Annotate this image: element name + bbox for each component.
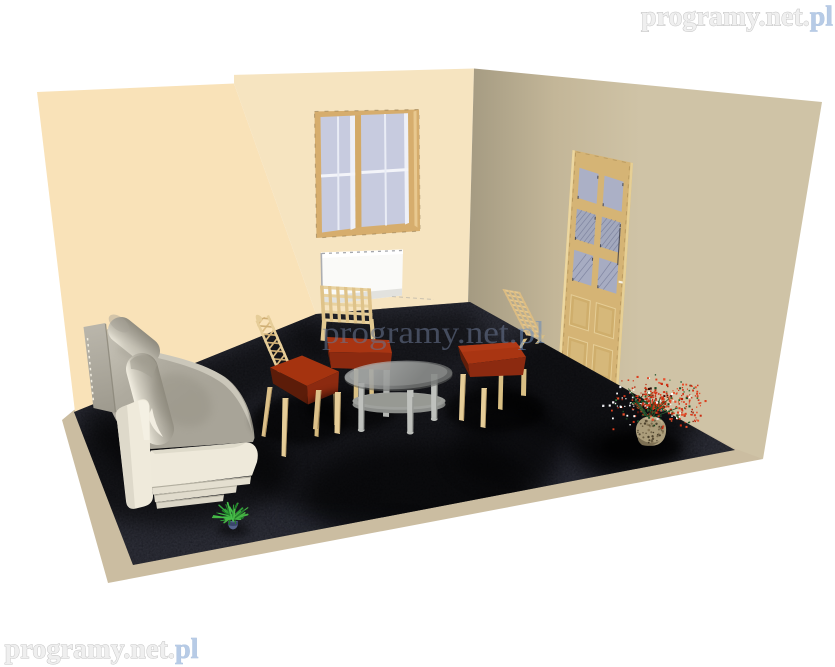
svg-text:programy.net.pl: programy.net.pl — [5, 633, 199, 665]
svg-text:programy.net.pl: programy.net.pl — [322, 315, 545, 350]
svg-text:programy.net.pl: programy.net.pl — [641, 1, 833, 33]
